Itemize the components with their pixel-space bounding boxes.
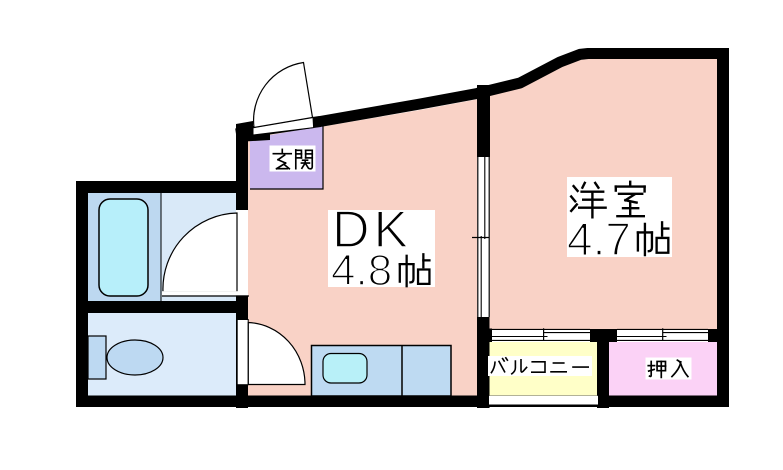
svg-text:4.8: 4.8 [331, 246, 392, 295]
svg-text:4.7: 4.7 [567, 213, 631, 265]
